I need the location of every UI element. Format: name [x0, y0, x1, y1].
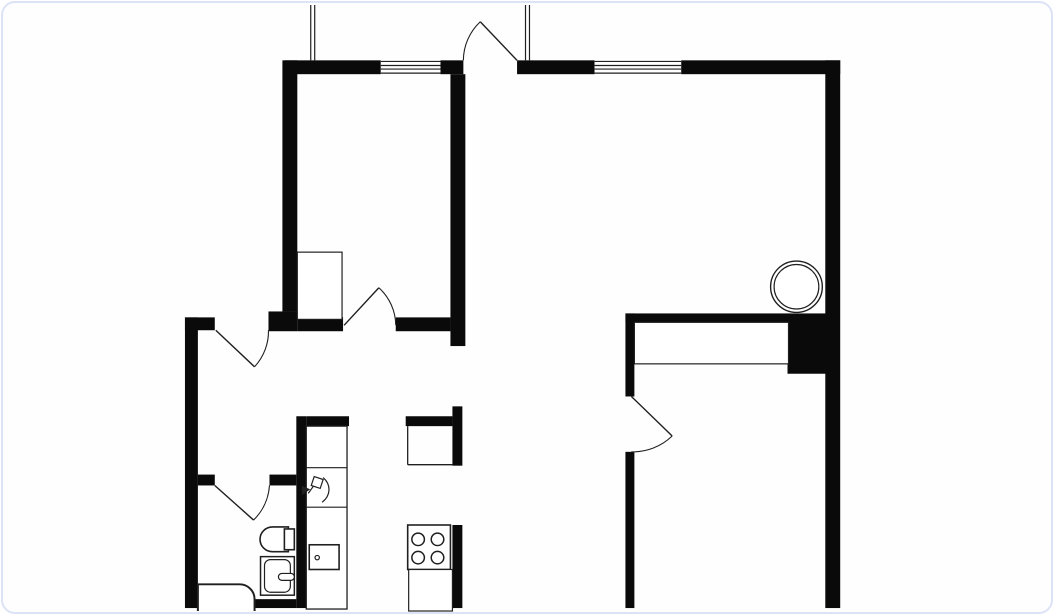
wall-right-exterior: [825, 60, 840, 608]
wall-top-west-a: [284, 60, 380, 74]
wall-middle-vertical: [450, 74, 465, 346]
floor-plan-canvas: [3, 3, 1051, 612]
wall-bath-north-left: [198, 475, 215, 486]
wall-counter-cap: [306, 416, 349, 426]
wall-left-exterior: [185, 317, 198, 608]
toilet-icon: [260, 527, 294, 552]
wall-shaft-block: [788, 313, 827, 373]
wardrobe-bedroom: [634, 322, 788, 364]
wall-bath-south-bar: [253, 599, 297, 608]
wall-top-east-a: [517, 60, 595, 74]
door-bathroom: [215, 485, 270, 520]
door-entry: [216, 330, 269, 367]
wall-hall-north-right: [396, 317, 451, 331]
wall-kitchen-east-lower: [452, 525, 462, 608]
washbasin-icon: [261, 557, 295, 596]
window-bedroom2: [381, 60, 441, 74]
door-bedroom-main: [631, 396, 672, 451]
wall-island-east: [452, 406, 462, 465]
closet-bedroom2: [297, 252, 342, 319]
wall-closet-north-band: [625, 313, 788, 322]
wall-bedroom-west-lower: [625, 452, 634, 608]
wall-top-east-b: [681, 60, 840, 74]
rails-layer: [311, 5, 530, 60]
bathtub-icon: [198, 584, 255, 611]
wall-bath-north-right: [269, 475, 296, 486]
floor-plan-card: [1, 1, 1053, 614]
wall-bedroom-west-upper: [625, 313, 634, 396]
kitchen-counter-left: [306, 426, 347, 609]
wall-top-west-jamb: [440, 60, 463, 74]
window-living: [595, 60, 682, 74]
wall-island-cap: [406, 416, 453, 426]
wall-bedroom2-west: [282, 60, 297, 311]
door-balcony-top: [463, 22, 517, 61]
wall-bath-kitchen: [296, 416, 306, 608]
boiler-circle: [771, 261, 823, 312]
kitchen-sink-icon: [309, 545, 339, 570]
counter-below-stove: [409, 569, 453, 611]
floor-plan-screenshot: [0, 0, 1054, 616]
stove-icon: [408, 525, 451, 569]
door-bedroom2: [344, 288, 396, 326]
wall-bedroom2-west-foot: [268, 311, 297, 331]
duct-shaft: [408, 426, 453, 465]
